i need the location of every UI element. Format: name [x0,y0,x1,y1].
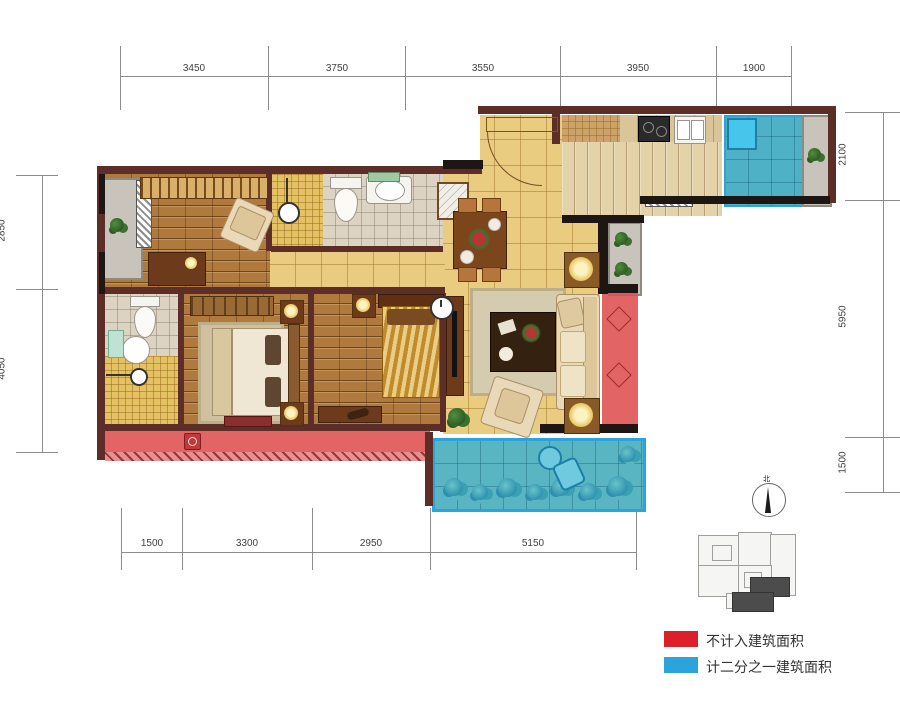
garden-plant-icon [620,446,636,462]
kitchen-sink-icon [674,116,706,144]
plant-icon [110,218,124,232]
sofa-icon [556,294,600,410]
wall-bath2-bottom [271,246,443,252]
dim-label-top-5: 1900 [724,63,784,74]
garden-balcony-floor [432,438,646,512]
nightstand-lamp-icon [284,304,298,318]
plant-icon [808,148,821,161]
bed-bench-icon [224,416,272,427]
key-plan-highlight-unit [732,592,774,612]
garden-plant-icon [498,478,517,497]
bedroom2-desk-icon [318,406,382,423]
dim-label-left-2: 4050 [0,339,8,399]
dim-line-top [120,76,792,77]
wall-entry-left [443,160,483,169]
wall-main-top [97,166,482,174]
dining-chair-icon [458,198,477,213]
plant-icon [615,232,628,245]
dining-table-icon [453,211,507,269]
wall-right-balcony-top [598,284,638,293]
wall-top-band [478,106,836,114]
dim-line-right [883,112,884,492]
wash-basin-icon [727,118,757,150]
wall-bedrooms-bottom [105,424,445,431]
dim-line-bottom [121,552,636,553]
dim-tick [845,492,900,493]
dim-label-top-2: 3750 [307,63,367,74]
bookshelf-icon [140,177,268,199]
dim-tick [16,452,58,453]
balcony-excluded-bottom [105,430,430,454]
kitchen-backsplash [562,115,620,142]
dim-label-right-3: 1500 [838,433,849,493]
study-desk-icon [148,252,206,286]
wall-right-balcony-bottom [598,424,638,433]
dim-line-left [42,175,43,452]
wall-master-bedroom2 [308,293,314,426]
dim-label-top-3: 3550 [453,63,513,74]
towel-icon [368,172,400,182]
floor-lamp-icon [569,257,593,281]
dim-label-bottom-4: 5150 [503,538,563,549]
dim-label-bottom-1: 1500 [122,538,182,549]
bedroom2-bed-icon [382,306,440,398]
dim-tick [636,508,637,570]
garden-plant-icon [472,484,488,500]
dim-label-top-1: 3450 [164,63,224,74]
legend-label-excluded: 不计入建筑面积 [706,631,804,651]
wall-garden-left [425,432,433,506]
garden-plant-icon [608,476,628,496]
garden-plant-icon [527,484,543,500]
master-bed-icon [212,328,290,416]
basin-icon [122,336,150,364]
dim-tick [430,508,431,570]
compass-needle-icon [765,487,771,513]
floorplan-canvas: 3450 3750 3550 3950 1900 2850 4050 2100 … [0,0,900,705]
nightstand-lamp-icon [284,406,298,420]
dim-tick [845,200,900,201]
dining-chair-icon [458,267,477,282]
legend-swatch-excluded [664,631,698,647]
stove-icon [638,116,670,142]
dim-label-bottom-2: 3300 [217,538,277,549]
dim-tick [16,289,58,290]
dim-tick [268,46,269,110]
wardrobe-icon [190,296,274,316]
dim-label-right-1: 2100 [838,125,849,185]
dim-tick [791,46,792,110]
hallway-floor [270,250,445,290]
shoe-cabinet-icon [486,117,558,132]
dim-tick [560,46,561,110]
coffee-table-icon [490,312,556,372]
garden-plant-icon [445,478,463,496]
wall-corridor [105,287,445,294]
dim-tick [120,46,121,110]
balcony-excluded-bottom-parapet [105,452,430,461]
towel-icon [108,330,124,358]
dim-tick [405,46,406,110]
dim-tick [16,175,58,176]
legend-label-half-area: 计二分之一建筑面积 [706,657,832,677]
wall-left-dark1 [99,174,105,214]
kitchen-floor [562,140,722,216]
exterior-patch [443,115,480,163]
dim-label-top-4: 3950 [608,63,668,74]
wall-clock-icon [430,296,454,320]
dim-tick [845,437,900,438]
garden-plant-icon [580,483,597,500]
dining-chair-icon [482,267,501,282]
floor-drain-icon [184,433,201,450]
bedroom2-lamp-icon [356,298,370,312]
legend-swatch-half-area [664,657,698,673]
floor-lamp-icon [569,403,593,427]
dim-label-bottom-3: 2950 [341,538,401,549]
wall-band-bottom [640,196,830,204]
dim-tick [716,46,717,110]
dining-chair-icon [482,198,501,213]
bathroom1-shower-floor [105,356,179,426]
dim-label-right-2: 5950 [838,287,849,347]
dim-label-left-1: 2850 [0,201,8,261]
grab-bar-icon [130,368,148,386]
wall-bath1-master [178,293,184,426]
plant-icon [615,262,628,275]
wall-band-right [828,106,836,203]
dim-tick [845,112,900,113]
dim-tick [312,508,313,570]
dim-tick [182,508,183,570]
plant-icon [448,408,466,426]
showerhead-icon [278,202,300,224]
